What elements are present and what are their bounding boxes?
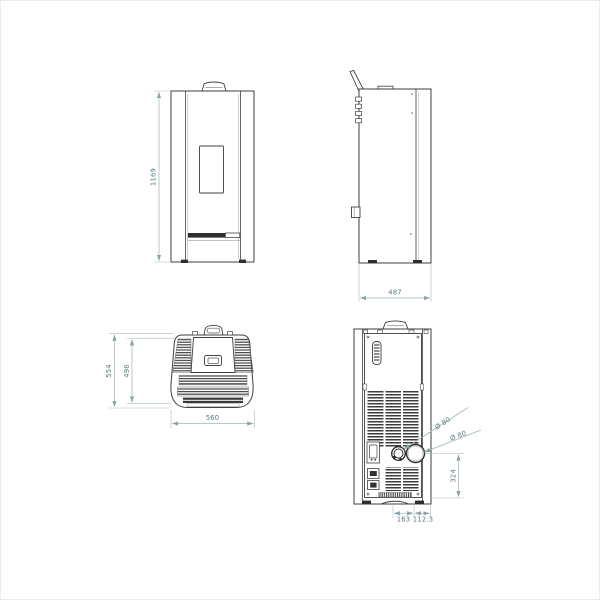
top-rear-slot-2 <box>183 401 243 403</box>
screw-dot <box>411 112 413 114</box>
back-level-indicator <box>373 342 382 365</box>
top-depth-dimensions: 554 496 <box>105 334 175 408</box>
connector-pin <box>371 459 373 461</box>
back-louvre-column-mid <box>386 390 402 448</box>
front-grate-light <box>225 233 239 238</box>
back-handle <box>383 321 408 329</box>
rib <box>356 97 362 101</box>
top-tab-left <box>193 332 198 335</box>
front-right-foot <box>239 260 246 263</box>
top-lid-panel <box>191 338 235 373</box>
back-top-bracket <box>378 330 383 333</box>
dim-label-487: 487 <box>388 289 402 297</box>
side-rear-foot <box>413 260 422 263</box>
front-grate-dark <box>188 233 225 238</box>
back-view: Ø 80 Ø 80 324 163 112.3 <box>354 321 481 524</box>
top-rear-slot-1 <box>183 398 243 400</box>
front-view: 1169 <box>150 82 255 263</box>
bottom-offset-dimensions: 163 112.3 <box>393 502 433 524</box>
screw-dot <box>410 233 412 235</box>
back-louvre-lower-right <box>403 467 419 491</box>
port-clamp-dot <box>399 458 402 461</box>
connector <box>370 445 378 458</box>
front-height-dimension: 1169 <box>150 91 172 262</box>
back-left-foot <box>362 501 371 504</box>
side-open-flap <box>350 70 363 90</box>
connector-pin <box>374 459 376 461</box>
dim-label-163: 163 <box>397 516 411 524</box>
back-side-clip <box>363 384 366 390</box>
dim-label-1169: 1169 <box>150 168 158 186</box>
rib <box>356 111 362 115</box>
screw <box>367 493 369 495</box>
front-top-handle <box>202 82 226 91</box>
screw <box>417 493 419 495</box>
port-outer-ring <box>407 445 425 463</box>
back-bottom-grille <box>379 493 412 498</box>
side-depth-dimension: 487 <box>359 264 431 302</box>
side-front-foot <box>368 260 377 263</box>
back-connector-panel <box>367 442 380 463</box>
dim-label-554: 554 <box>105 364 113 378</box>
back-louvre-column-left <box>368 390 384 448</box>
dim-label-flue-upper: Ø 80 <box>434 416 453 432</box>
smoke-outlet-port <box>392 447 406 461</box>
side-body <box>359 89 431 263</box>
top-rear-grille-band2 <box>178 387 249 396</box>
air-outlet-port <box>407 445 425 463</box>
top-right-grille <box>235 339 253 373</box>
dim-label-496: 496 <box>123 364 131 378</box>
side-view: 487 <box>350 70 431 302</box>
top-lid-handle <box>208 358 219 363</box>
front-door-window <box>200 146 224 193</box>
side-bracket <box>352 207 361 218</box>
back-louvre-column-right <box>403 390 419 448</box>
back-side-clip <box>420 384 423 390</box>
back-corner-bracket <box>424 330 428 334</box>
port-clamp-dot <box>393 456 396 459</box>
top-tab-right <box>228 332 233 335</box>
power-socket-opening <box>370 471 377 476</box>
stove-diagram-svg: 1169 487 <box>1 1 599 599</box>
top-rear-grille-band1 <box>179 376 247 385</box>
rib <box>356 119 362 123</box>
top-rear-strip <box>187 404 239 407</box>
dim-label-324: 324 <box>449 469 457 483</box>
back-top-bracket <box>409 330 414 333</box>
rib <box>356 104 362 108</box>
screw <box>367 336 369 338</box>
dim-label-flue-lower: Ø 80 <box>449 429 468 443</box>
top-view: 554 496 560 <box>105 325 254 428</box>
screw <box>417 336 419 338</box>
front-left-foot <box>181 260 188 263</box>
product-diagram-canvas: 1169 487 <box>0 0 600 600</box>
screw-dot <box>411 93 413 95</box>
top-width-dimension: 560 <box>171 410 254 428</box>
dim-label-112: 112.3 <box>413 516 433 524</box>
back-louvre-lower-mid <box>386 467 402 491</box>
dim-label-560: 560 <box>206 414 220 422</box>
flue-lower-callout: Ø 80 <box>425 429 482 452</box>
power-switch-rocker <box>370 483 376 488</box>
back-right-foot <box>415 501 424 504</box>
